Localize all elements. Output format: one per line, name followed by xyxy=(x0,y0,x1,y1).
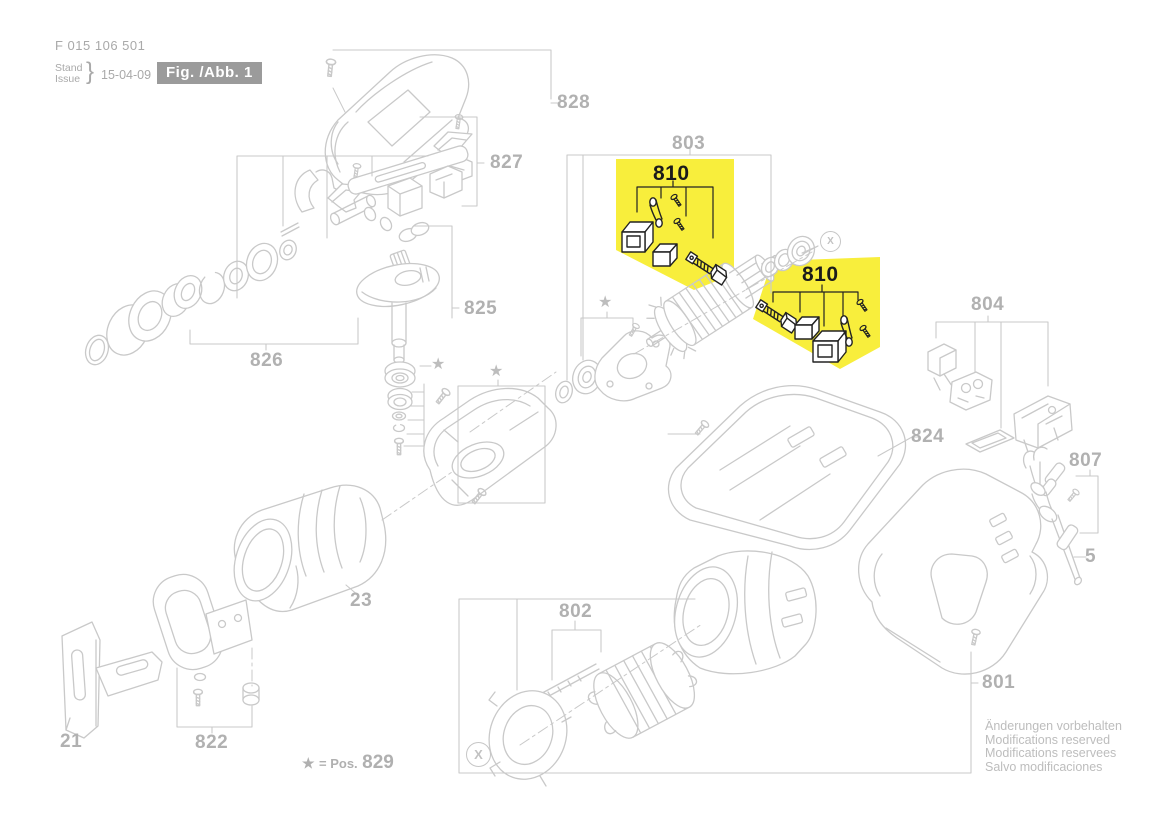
star-note-text: = Pos. xyxy=(319,756,358,771)
part-label-802: 802 xyxy=(559,601,592,623)
sketch-gearbox-housing xyxy=(424,387,556,505)
part-label-822: 822 xyxy=(195,732,228,754)
sketch-mount-ring xyxy=(477,680,579,791)
notice-line-de: Änderungen vorbehalten xyxy=(985,720,1122,734)
part-label-807: 807 xyxy=(1069,450,1102,472)
sketch-clamshell-824 xyxy=(668,386,906,550)
sketch-motor-can xyxy=(665,551,816,674)
part-label-21: 21 xyxy=(60,731,82,753)
part-label-828: 828 xyxy=(557,92,590,114)
sketch-switch-parts-804 xyxy=(928,344,1072,452)
modification-notices: Änderungen vorbehalten Modifications res… xyxy=(985,720,1122,774)
part-label-803: 803 xyxy=(672,133,705,155)
part-label-826: 826 xyxy=(250,350,283,372)
issue-label: Issue xyxy=(55,74,82,85)
exploded-parts-drawing xyxy=(0,0,1169,826)
part-label-824: 824 xyxy=(911,426,944,448)
part-label-825: 825 xyxy=(464,298,497,320)
notice-line-es: Salvo modificaciones xyxy=(985,761,1122,775)
part-label-804: 804 xyxy=(971,294,1004,316)
x-marker-top: X xyxy=(820,231,841,252)
parts-diagram-page: F 015 106 501 Stand Issue } 15-04-09 Fig… xyxy=(0,0,1169,826)
part-label-5: 5 xyxy=(1085,546,1096,568)
part-label-810-left: 810 xyxy=(653,162,690,186)
issue-date: 15-04-09 xyxy=(101,68,151,82)
notice-line-en: Modifications reserved xyxy=(985,734,1122,748)
sketch-counterweight-825 xyxy=(353,220,443,454)
part-label-810-right: 810 xyxy=(802,263,839,287)
part-label-23: 23 xyxy=(350,590,372,612)
brace-glyph: } xyxy=(86,58,94,86)
sketch-foot-21 xyxy=(62,622,162,738)
x-marker-bottom: X xyxy=(466,742,491,767)
star-note-number: 829 xyxy=(362,752,394,773)
star-marker-1: ★ xyxy=(431,354,445,374)
stand-issue-label: Stand Issue xyxy=(55,63,82,85)
star-position-note: ★ = Pos. 829 xyxy=(302,752,394,774)
sketch-bearing-flange xyxy=(553,322,671,405)
star-marker-3: ★ xyxy=(598,292,612,312)
figure-title-badge: Fig. /Abb. 1 xyxy=(157,62,262,84)
star-marker-2: ★ xyxy=(489,361,503,381)
star-icon: ★ xyxy=(302,755,315,771)
part-label-827: 827 xyxy=(490,152,523,174)
document-number: F 015 106 501 xyxy=(55,38,145,53)
notice-line-fr: Modifications reservees xyxy=(985,747,1122,761)
part-label-801: 801 xyxy=(982,672,1015,694)
sketch-handle-801 xyxy=(859,469,1048,674)
